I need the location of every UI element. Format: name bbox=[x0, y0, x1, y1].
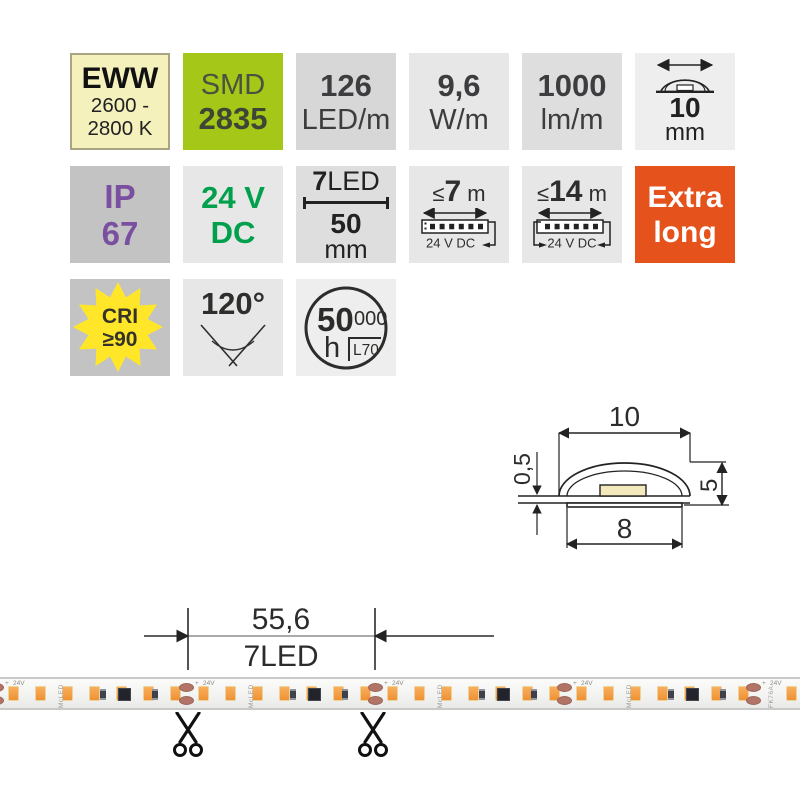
led-strip: +24VMcLED+24VMcLED+24VMcLED+24VMcLED+24V… bbox=[0, 677, 800, 710]
cut-dimension-glyph bbox=[303, 197, 389, 209]
cut-led-count: 7LED bbox=[312, 168, 380, 195]
badge-strip-width: 10 mm bbox=[635, 53, 735, 150]
cut-length-unit: mm bbox=[324, 237, 367, 262]
resistor bbox=[720, 689, 726, 700]
ip-label: IP bbox=[104, 178, 135, 215]
power-value: 9,6 bbox=[437, 68, 480, 104]
polarity-plus: + bbox=[762, 680, 766, 687]
resistor bbox=[100, 689, 106, 700]
strip-dimension: 55,6 7LED bbox=[100, 600, 510, 676]
run14-strip-icon: 24 V DC bbox=[530, 208, 614, 250]
badge-cut-length: 7LED 50 mm bbox=[296, 166, 396, 263]
solder-pad bbox=[0, 696, 4, 705]
solder-pad bbox=[746, 696, 761, 705]
lifetime-hours: h bbox=[324, 332, 340, 364]
run7-unit: m bbox=[461, 181, 485, 206]
cri-value: ≥90 bbox=[103, 328, 138, 351]
solder-pad bbox=[368, 683, 383, 692]
lifetime-l70: L70 bbox=[353, 342, 379, 359]
run7-strip-icon: 24 V DC bbox=[419, 208, 499, 250]
part-number-label: FK76A bbox=[768, 682, 775, 708]
brand-label: McLED bbox=[248, 682, 255, 708]
voltage-type: DC bbox=[211, 215, 256, 250]
cut-length-value: 50 bbox=[330, 210, 361, 237]
brand-label: McLED bbox=[58, 682, 65, 708]
ic-chip bbox=[497, 688, 510, 701]
cri-text: CRI ≥90 bbox=[70, 279, 170, 376]
led-chip bbox=[657, 686, 668, 701]
solder-pad bbox=[179, 696, 194, 705]
resistor bbox=[290, 689, 296, 700]
cut-dimension-label: 7LED bbox=[243, 640, 318, 673]
voltage-value: 24 V bbox=[201, 180, 265, 215]
led-chip bbox=[603, 686, 614, 701]
ip-value: 67 bbox=[102, 215, 139, 252]
solder-pad bbox=[179, 683, 194, 692]
badge-max-run-7m: ≤7 m 24 V DC bbox=[409, 166, 509, 263]
density-unit: LED/m bbox=[302, 104, 391, 136]
cut-count-unit: LED bbox=[327, 166, 380, 196]
density-value: 126 bbox=[320, 68, 372, 104]
led-chip bbox=[468, 686, 479, 701]
cct-range-to: 2800 K bbox=[88, 117, 153, 140]
badge-max-run-14m: ≤14 m 24 V DC bbox=[522, 166, 622, 263]
run14-label: ≤14 m bbox=[537, 179, 607, 207]
led-chip bbox=[225, 686, 236, 701]
led-chip bbox=[279, 686, 290, 701]
badge-voltage: 24 V DC bbox=[183, 166, 283, 263]
dim-width-bottom: 8 bbox=[617, 513, 633, 544]
cut-count-number: 7 bbox=[312, 166, 327, 196]
beam-angle-icon bbox=[197, 322, 269, 368]
ic-chip bbox=[118, 688, 131, 701]
scissors-icon bbox=[356, 712, 390, 758]
led-chip bbox=[387, 686, 398, 701]
run7-label: ≤7 m bbox=[432, 179, 485, 207]
led-chip bbox=[35, 686, 46, 701]
led-chip bbox=[8, 686, 19, 701]
run14-voltage-label: 24 V DC bbox=[547, 236, 596, 251]
cut-dimension-value: 55,6 bbox=[252, 603, 310, 636]
cct-range-from: 2600 - bbox=[91, 94, 149, 117]
resistor bbox=[668, 689, 674, 700]
beam-angle-value: 120° bbox=[201, 288, 265, 320]
solder-pad bbox=[746, 683, 761, 692]
badge-color-temperature: EWW 2600 - 2800 K bbox=[70, 53, 170, 150]
badge-beam-angle: 120° bbox=[183, 279, 283, 376]
led-chip bbox=[89, 686, 100, 701]
badge-led-density: 126 LED/m bbox=[296, 53, 396, 150]
cross-section-diagram: 10 0,5 5 8 bbox=[498, 395, 760, 570]
run14-value: 14 bbox=[549, 175, 582, 208]
dim-height: 5 bbox=[696, 479, 723, 492]
scissors-icon bbox=[171, 712, 205, 758]
lifetime-icon: 50 000 h L70 bbox=[302, 284, 390, 372]
dim-thickness: 0,5 bbox=[509, 453, 535, 485]
smd-label: SMD bbox=[201, 69, 265, 102]
solder-pad bbox=[368, 696, 383, 705]
solder-pad bbox=[557, 696, 572, 705]
brand-label: McLED bbox=[437, 682, 444, 708]
run7-voltage-label: 24 V DC bbox=[426, 236, 475, 251]
strip-width-value: 10 bbox=[669, 95, 700, 121]
smd-size: 2835 bbox=[199, 102, 268, 135]
power-unit: W/m bbox=[429, 104, 489, 136]
resistor bbox=[531, 689, 537, 700]
flux-unit: lm/m bbox=[541, 104, 604, 136]
led-chip bbox=[198, 686, 209, 701]
led-chip bbox=[414, 686, 425, 701]
badge-lifetime: 50 000 h L70 bbox=[296, 279, 396, 376]
extra-long-line2: long bbox=[653, 215, 716, 250]
badge-ip-rating: IP 67 bbox=[70, 166, 170, 263]
run7-prefix: ≤ bbox=[432, 181, 444, 206]
run7-value: 7 bbox=[444, 175, 461, 208]
strip-width-unit: mm bbox=[665, 121, 705, 144]
badge-power: 9,6 W/m bbox=[409, 53, 509, 150]
brand-label: McLED bbox=[626, 682, 633, 708]
dim-width-top: 10 bbox=[609, 401, 640, 432]
strip-width-icon bbox=[653, 59, 717, 95]
solder-pad bbox=[557, 683, 572, 692]
lifetime-small: 000 bbox=[354, 308, 387, 330]
led-chip bbox=[576, 686, 587, 701]
badge-extra-long: Extra long bbox=[635, 166, 735, 263]
run14-prefix: ≤ bbox=[537, 181, 549, 206]
flux-value: 1000 bbox=[538, 68, 607, 104]
resistor bbox=[152, 689, 158, 700]
ic-chip bbox=[308, 688, 321, 701]
led-chip bbox=[786, 686, 797, 701]
resistor bbox=[342, 689, 348, 700]
extra-long-line1: Extra bbox=[647, 180, 722, 215]
led-chip-cross-section bbox=[600, 485, 646, 496]
resistor bbox=[479, 689, 485, 700]
badge-luminous-flux: 1000 lm/m bbox=[522, 53, 622, 150]
cri-label: CRI bbox=[102, 305, 138, 328]
cct-code: EWW bbox=[82, 63, 159, 94]
badge-smd-type: SMD 2835 bbox=[183, 53, 283, 150]
solder-pad bbox=[0, 683, 4, 692]
badge-cri: CRI ≥90 bbox=[70, 279, 170, 376]
run14-unit: m bbox=[583, 181, 607, 206]
ic-chip bbox=[686, 688, 699, 701]
